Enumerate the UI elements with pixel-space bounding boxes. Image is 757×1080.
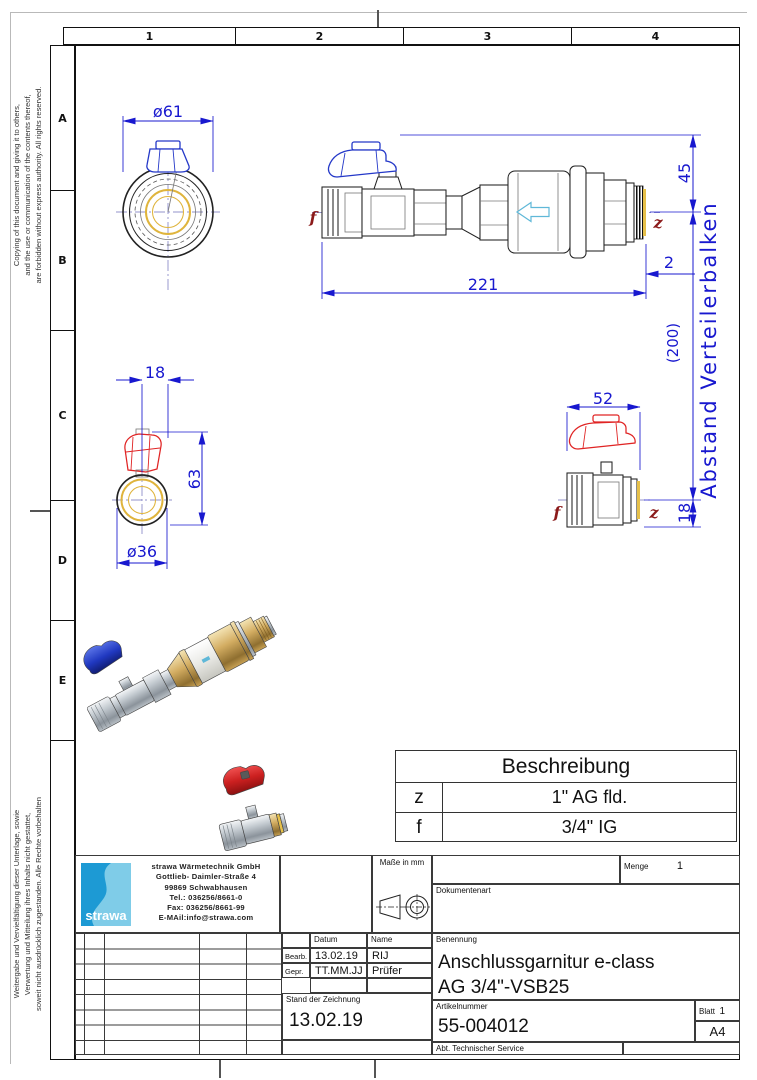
artikelnummer-cell: Artikelnummer 55-004012 (432, 1000, 695, 1042)
table-row: z 1" AG fld. (396, 783, 736, 813)
artikelnummer-value: 55-004012 (433, 1011, 694, 1038)
datum-label: Datum (311, 934, 366, 944)
empty-cell (280, 855, 372, 933)
detail-left-handle (125, 429, 161, 472)
menge-cell: Menge 1 (620, 855, 740, 884)
dim-detail-left-top: 18 (135, 363, 175, 381)
empty-cell (282, 1040, 432, 1055)
front-view (116, 141, 220, 292)
dim-thread-offset: 2 (658, 253, 680, 271)
datum-header-cell: Datum (310, 933, 367, 948)
drawing-sheet: Copying of this document and giving it t… (0, 0, 757, 1080)
dokumentenart-cell: Dokumentenart (432, 884, 740, 933)
bearb-label-cell: Bearb. (282, 948, 310, 963)
name-header-cell: Name (367, 933, 432, 948)
port-value-z: 1" AG fld. (443, 783, 736, 812)
dim-axis-distance: (200) (664, 313, 682, 373)
title-block: strawa strawa Wärmetechnik GmbH Gottlieb… (75, 855, 740, 1055)
name-label: Name (368, 934, 431, 944)
artikelnummer-label: Artikelnummer (433, 1001, 694, 1011)
gepr-datum-cell: TT.MM.JJ (310, 963, 367, 978)
side-view-handle (328, 142, 396, 177)
empty-cell (623, 1042, 740, 1055)
dim-detail-right-width: 52 (573, 389, 633, 407)
stand-label: Stand der Zeichnung (283, 994, 431, 1004)
benennung-line2: AG 3/4"-VSB25 (433, 974, 739, 999)
render-assembly-3d (63, 568, 282, 739)
company-email: E-MAil:info@strawa.com (133, 913, 279, 923)
blatt-label: Blatt (696, 1006, 715, 1016)
abteilung-cell: Abt. Technischer Service (432, 1042, 623, 1055)
stand-cell: Stand der Zeichnung 13.02.19 (282, 993, 432, 1040)
empty-cell (310, 978, 367, 993)
empty-cell (282, 933, 310, 948)
company-cell: strawa strawa Wärmetechnik GmbH Gottlieb… (75, 855, 280, 933)
bearb-datum-cell: 13.02.19 (310, 948, 367, 963)
menge-value: 1 (677, 860, 683, 872)
benennung-label: Benennung (433, 934, 739, 944)
detail-right-handle (569, 415, 635, 449)
gepr-name-cell: Prüfer (367, 963, 432, 978)
side-view-thread (634, 186, 646, 239)
logo-wordmark: strawa (85, 908, 127, 923)
blatt-value: 1 (719, 1006, 725, 1017)
stand-value: 13.02.19 (283, 1004, 431, 1032)
dim-front-diameter: ø61 (138, 102, 198, 120)
benennung-cell: Benennung Anschlussgarnitur e-class AG 3… (432, 933, 740, 1000)
port-key-z: z (396, 783, 443, 812)
port-label-z-detail: z (644, 503, 664, 521)
port-value-f: 3/4" IG (443, 813, 736, 842)
side-view (312, 142, 660, 258)
bearb-name-cell: RIJ (367, 948, 432, 963)
render-blue-handle (79, 635, 126, 676)
axis-distance-label: Abstand Verteilerbalken (697, 190, 721, 510)
front-view-handle (147, 141, 189, 172)
company-address-street: Gottlieb- Daimler-Straße 4 (133, 872, 279, 882)
revision-grid (75, 933, 282, 1055)
port-label-f-detail: f (547, 503, 567, 521)
description-table: Beschreibung z 1" AG fld. f 3/4" IG (395, 750, 737, 842)
description-table-title: Beschreibung (396, 751, 736, 783)
menge-label: Menge (621, 861, 648, 871)
gepr-label-cell: Gepr. (282, 963, 310, 978)
blatt-cell: Blatt 1 (695, 1000, 740, 1021)
dokumentenart-label: Dokumentenart (433, 885, 739, 895)
port-label-z-side: z (648, 213, 668, 231)
units-cell: Maße in mm (372, 855, 432, 933)
empty-cell (432, 855, 620, 884)
projection-symbol-icon (376, 892, 430, 924)
empty-cell (367, 978, 432, 993)
dim-detail-left-diameter: ø36 (112, 542, 172, 560)
format-cell: A4 (695, 1021, 740, 1042)
dim-detail-left-height: 63 (185, 459, 203, 499)
port-key-f: f (396, 813, 443, 842)
dim-axis-bottom: 18 (675, 493, 693, 533)
company-phone: Tel.: 036256/8661-0 (133, 893, 279, 903)
detail-right-thread (637, 481, 640, 519)
company-name: strawa Wärmetechnik GmbH (133, 862, 279, 872)
company-fax: Fax: 036256/8661-99 (133, 903, 279, 913)
benennung-line1: Anschlussgarnitur e-class (433, 944, 739, 974)
strawa-logo: strawa (81, 863, 131, 926)
dim-side-length: 221 (453, 275, 513, 293)
render-valve-3d (206, 759, 289, 851)
units-label: Maße in mm (373, 856, 431, 867)
port-label-f-side: f (303, 208, 323, 226)
table-row: f 3/4" IG (396, 813, 736, 842)
company-address-city: 99869 Schwabhausen (133, 883, 279, 893)
dim-side-height: 45 (675, 153, 693, 193)
